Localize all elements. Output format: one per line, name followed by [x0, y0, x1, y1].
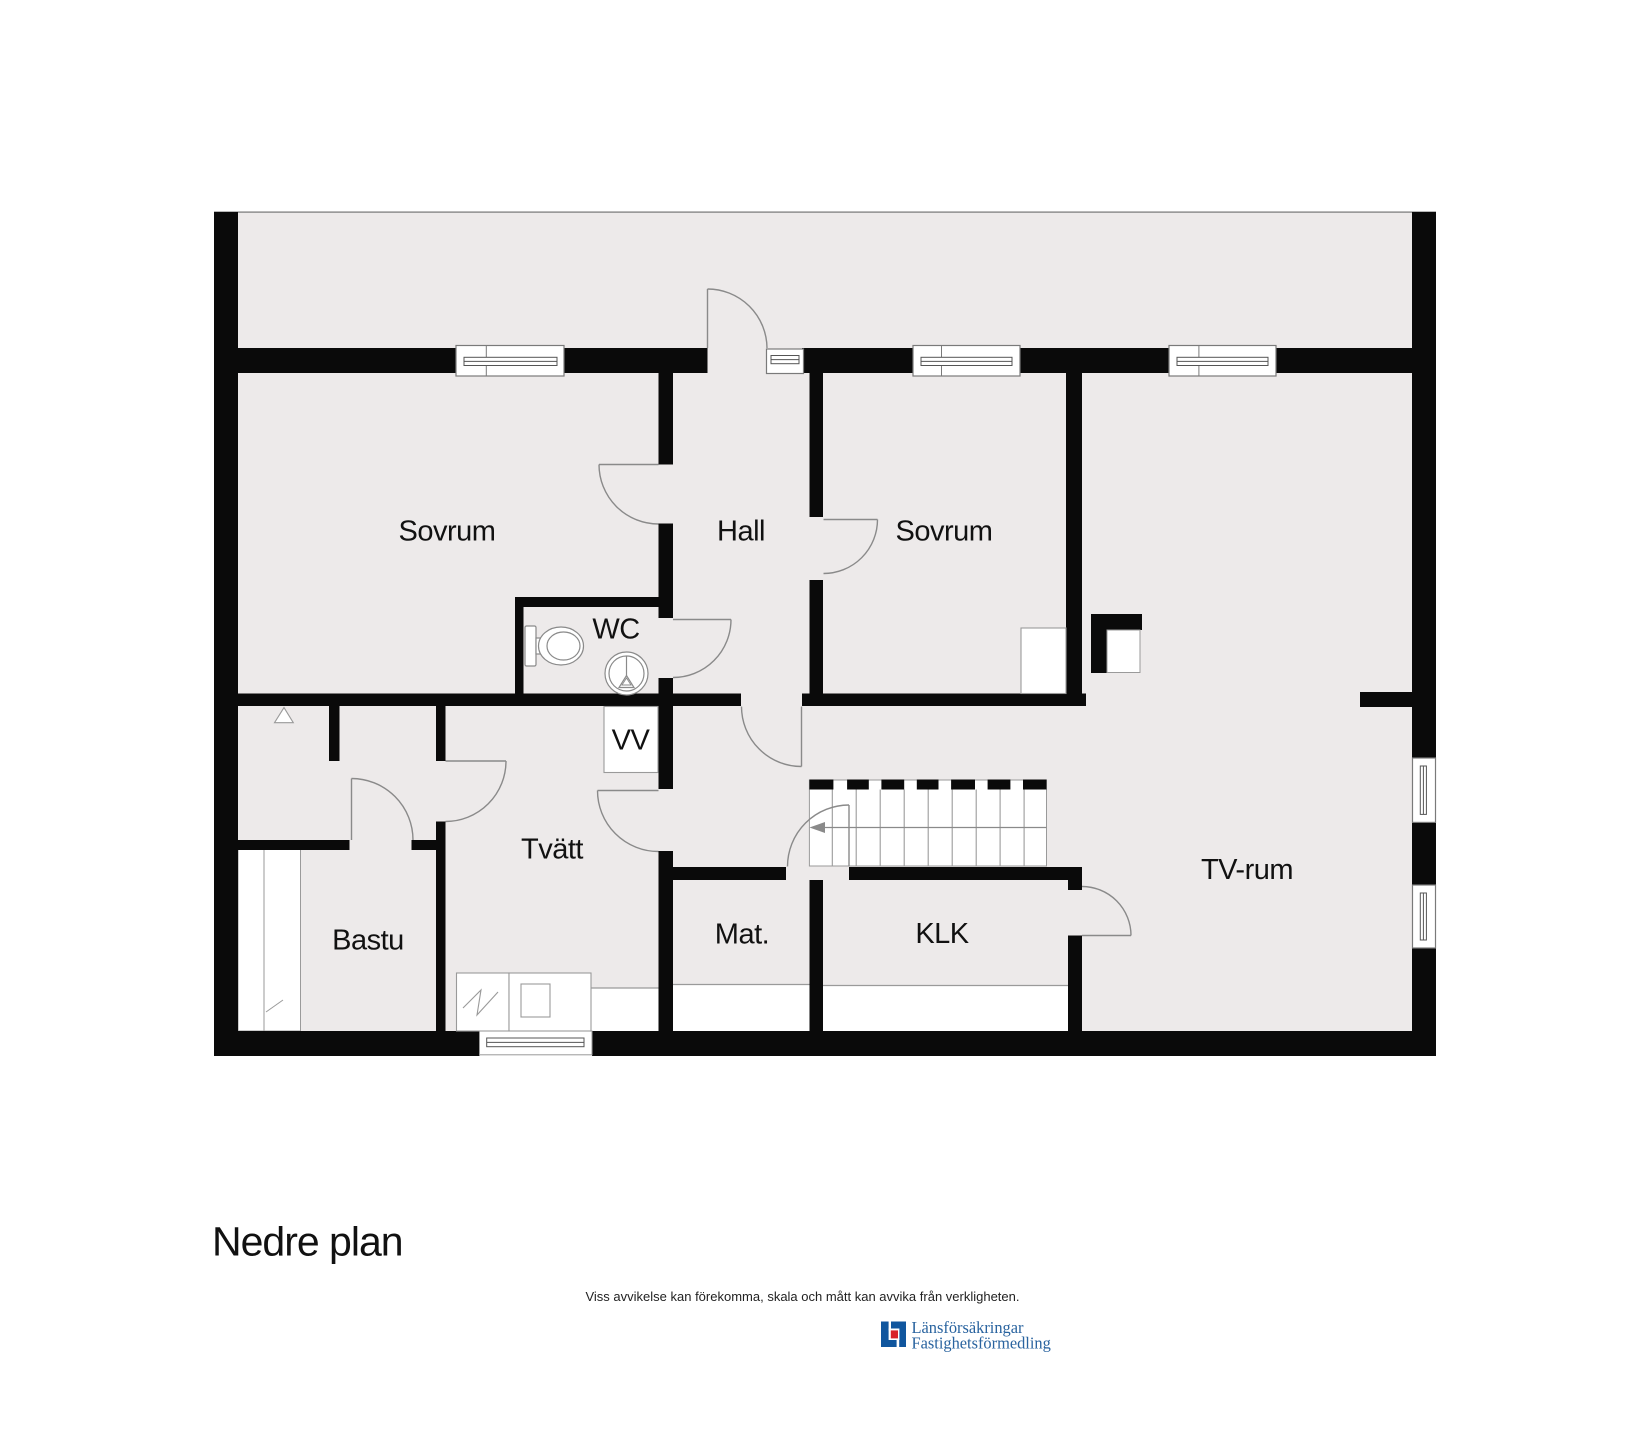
svg-text:Nedre plan: Nedre plan: [212, 1219, 403, 1265]
svg-text:Tvätt: Tvätt: [521, 834, 583, 866]
svg-text:WC: WC: [592, 614, 639, 646]
svg-text:Hall: Hall: [717, 516, 765, 548]
svg-text:Fastighetsförmedling: Fastighetsförmedling: [912, 1334, 1051, 1353]
svg-text:Viss avvikelse kan förekomma,: Viss avvikelse kan förekomma, skala och …: [585, 1289, 1019, 1304]
svg-text:VV: VV: [612, 725, 651, 757]
svg-text:Mat.: Mat.: [715, 919, 769, 951]
svg-text:Sovrum: Sovrum: [896, 516, 993, 548]
svg-text:TV-rum: TV-rum: [1201, 854, 1293, 886]
svg-text:Sovrum: Sovrum: [399, 516, 496, 548]
svg-text:KLK: KLK: [915, 918, 969, 950]
svg-text:Bastu: Bastu: [332, 925, 404, 957]
